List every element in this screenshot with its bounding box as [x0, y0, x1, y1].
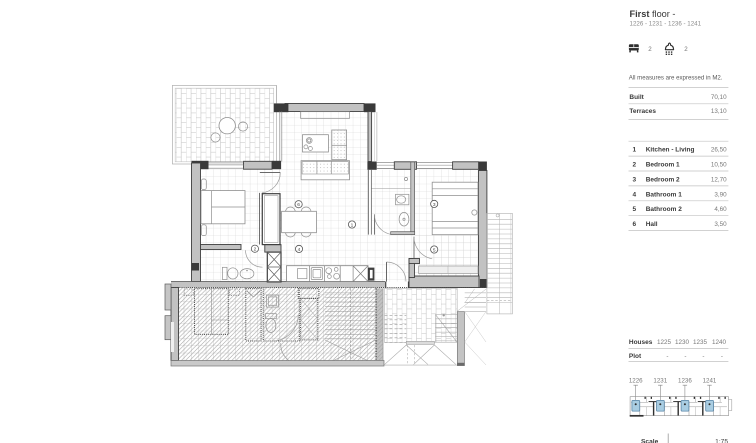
- svg-text:Bathroom 1: Bathroom 1: [646, 191, 683, 198]
- svg-text:1240: 1240: [712, 339, 727, 346]
- svg-text:Houses: Houses: [629, 339, 653, 346]
- svg-text:26,50: 26,50: [711, 147, 727, 154]
- svg-text:2: 2: [648, 46, 652, 53]
- svg-text:70,10: 70,10: [711, 94, 727, 101]
- svg-text:4: 4: [633, 191, 637, 198]
- svg-text:Plot: Plot: [629, 353, 642, 360]
- svg-text:12,70: 12,70: [711, 176, 727, 183]
- svg-text:Terraces: Terraces: [629, 108, 656, 115]
- svg-text:Hall: Hall: [646, 221, 658, 228]
- svg-text:10,50: 10,50: [711, 162, 727, 169]
- svg-text:First floor -: First floor -: [630, 9, 676, 19]
- svg-text:Scale: Scale: [641, 438, 659, 443]
- svg-text:1: 1: [633, 147, 637, 154]
- svg-text:1230: 1230: [675, 339, 690, 346]
- svg-text:5: 5: [633, 206, 637, 213]
- svg-text:1:75: 1:75: [715, 438, 728, 443]
- svg-text:6: 6: [297, 202, 300, 208]
- svg-text:1236: 1236: [678, 377, 692, 384]
- svg-text:1226: 1226: [629, 377, 643, 384]
- svg-text:6: 6: [633, 221, 637, 228]
- svg-text:1: 1: [351, 222, 354, 228]
- svg-text:Bathroom 2: Bathroom 2: [646, 206, 683, 213]
- svg-text:4: 4: [298, 247, 301, 253]
- svg-text:3: 3: [633, 176, 637, 183]
- svg-text:1225: 1225: [657, 339, 672, 346]
- svg-text:3: 3: [433, 202, 436, 208]
- svg-text:All measures are expressed in: All measures are expressed in M2.: [629, 75, 723, 82]
- svg-text:3,90: 3,90: [714, 191, 727, 198]
- svg-text:1226 - 1231 - 1236 - 1241: 1226 - 1231 - 1236 - 1241: [630, 21, 702, 28]
- svg-text:1231: 1231: [653, 377, 667, 384]
- svg-text:5: 5: [433, 247, 436, 253]
- svg-text:Kitchen - Living: Kitchen - Living: [646, 147, 695, 154]
- svg-text:Bedroom 1: Bedroom 1: [646, 162, 680, 169]
- svg-text:1241: 1241: [703, 377, 717, 384]
- svg-text:-: -: [702, 353, 704, 360]
- svg-text:-: -: [666, 353, 668, 360]
- svg-text:3,50: 3,50: [714, 221, 727, 228]
- svg-text:Built: Built: [629, 94, 644, 101]
- svg-text:2: 2: [684, 46, 688, 53]
- svg-text:1235: 1235: [693, 339, 708, 346]
- svg-text:13,10: 13,10: [711, 108, 727, 115]
- svg-text:-: -: [721, 353, 723, 360]
- svg-text:4,60: 4,60: [714, 206, 727, 213]
- svg-text:Bedroom 2: Bedroom 2: [646, 176, 680, 183]
- svg-text:-: -: [684, 353, 686, 360]
- svg-text:2: 2: [633, 162, 637, 169]
- svg-text:2: 2: [254, 247, 257, 253]
